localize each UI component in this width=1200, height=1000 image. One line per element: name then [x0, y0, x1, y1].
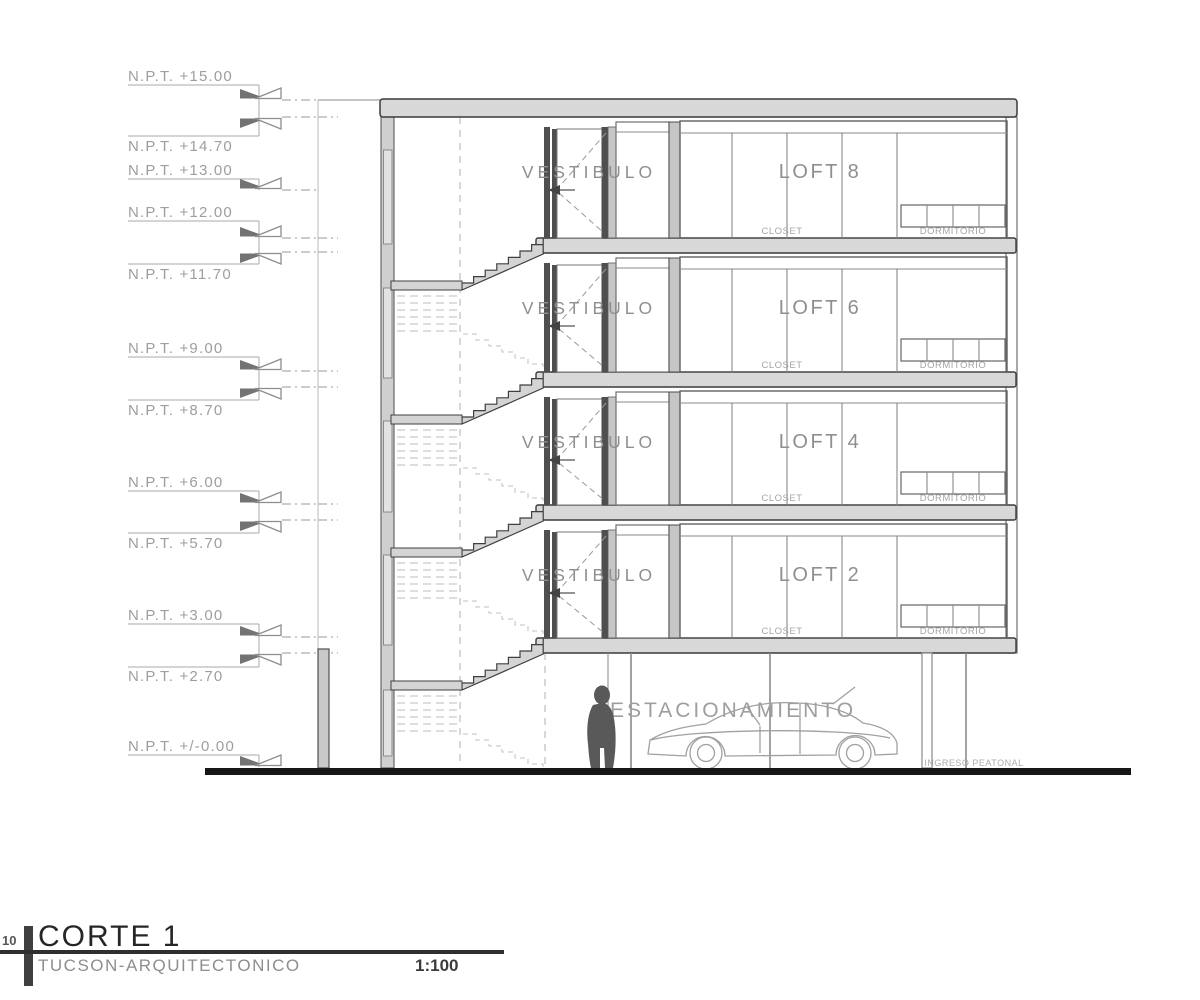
drawing-scale: 1:100 — [415, 956, 458, 976]
bedroom-label: DORMITORIO — [920, 360, 987, 371]
bedroom-label: DORMITORIO — [920, 626, 987, 637]
door-frame — [552, 265, 557, 372]
stair-hatch — [397, 696, 459, 731]
door-frame — [552, 399, 557, 505]
bedroom-label: DORMITORIO — [920, 226, 987, 237]
loft-label: LOFT 6 — [779, 297, 861, 319]
wall-window — [384, 555, 393, 645]
hidden-stair-flight — [463, 468, 543, 503]
level-label: N.P.T. +3.00 — [128, 607, 223, 624]
roof-slab — [380, 99, 1017, 117]
column — [669, 525, 680, 638]
sheet-number: 10 — [2, 933, 16, 948]
level-label: N.P.T. +6.00 — [128, 474, 223, 491]
loft-label: LOFT 2 — [779, 564, 861, 586]
stair-flight — [462, 372, 543, 424]
floor-slab — [536, 238, 1016, 253]
wall-stub — [608, 127, 616, 238]
closet-dividers — [732, 536, 897, 638]
door-frame — [552, 129, 557, 238]
vestibule-label: VESTIBULO — [522, 432, 656, 452]
level-marker — [240, 88, 281, 99]
person-silhouette — [587, 686, 615, 769]
level-label: N.P.T. +15.00 — [128, 68, 233, 85]
stair-hatch — [397, 563, 459, 598]
floor-slab — [536, 372, 1016, 387]
stair-landing — [391, 415, 462, 424]
vestibule-door — [557, 265, 602, 372]
title-divider-bar — [24, 926, 33, 986]
drawing-title: CORTE 1 — [38, 920, 181, 954]
level-label: N.P.T. +5.70 — [128, 535, 223, 552]
vestibule-label: VESTIBULO — [522, 162, 656, 182]
level-marker — [240, 119, 281, 130]
section-drawing: N.P.T. +15.00 N.P.T. +14.70 N.P.T. +13.0… — [0, 0, 1200, 1000]
level-marker — [240, 226, 281, 237]
level-marker — [240, 359, 281, 370]
stair-landing — [391, 681, 462, 690]
level-label: N.P.T. +12.00 — [128, 204, 233, 221]
stair-hatch — [397, 430, 459, 465]
level-label: N.P.T. +9.00 — [128, 340, 223, 357]
level-label: N.P.T. +13.00 — [128, 162, 233, 179]
floor-unit-2: VESTIBULO LOFT 6 CLOSET DORMITORIO — [522, 257, 1007, 372]
column — [922, 653, 932, 768]
vestibule-label: VESTIBULO — [522, 298, 656, 318]
door-frame — [544, 127, 550, 238]
title-rule — [0, 950, 504, 954]
level-marker — [240, 389, 281, 400]
level-label: N.P.T. +14.70 — [128, 138, 233, 155]
floor-unit-1: VESTIBULO LOFT 8 CLOSET DORMITORIO — [522, 121, 1007, 238]
floor-slab — [536, 505, 1016, 520]
drawing-subtitle: TUCSON-ARQUITECTONICO — [38, 956, 301, 976]
loft-label: LOFT 8 — [779, 161, 861, 183]
closet-dividers — [732, 133, 897, 238]
stair-flight — [462, 638, 543, 690]
closet-label: CLOSET — [761, 226, 802, 237]
level-marker — [240, 655, 281, 666]
column — [669, 122, 680, 238]
closet-dividers — [732, 403, 897, 505]
hidden-stair-flight — [463, 734, 543, 769]
hidden-stair-flight — [463, 601, 543, 636]
level-marker — [240, 254, 281, 265]
floor-slab — [536, 638, 1016, 653]
ground-floor: ESTACIONAMIENTO INGRESO PEATONAL — [587, 653, 1023, 769]
closet-dividers — [732, 269, 897, 372]
closet-label: CLOSET — [761, 360, 802, 371]
vestibule-door — [557, 129, 602, 238]
level-label: N.P.T. +11.70 — [128, 266, 232, 283]
door-frame — [602, 127, 609, 238]
wall-window — [384, 421, 393, 512]
blueprint-canvas: N.P.T. +15.00 N.P.T. +14.70 N.P.T. +13.0… — [0, 0, 1200, 1000]
hidden-stair-flight — [463, 334, 543, 369]
stair-hatch — [397, 296, 459, 331]
level-marker — [240, 178, 281, 189]
level-marker — [240, 492, 281, 503]
elevation-annotations: N.P.T. +15.00 N.P.T. +14.70 N.P.T. +13.0… — [128, 68, 381, 767]
stair-landing — [391, 548, 462, 557]
closet-label: CLOSET — [761, 493, 802, 504]
vestibule-label: VESTIBULO — [522, 565, 656, 585]
floor-unit-4: VESTIBULO LOFT 2 CLOSET DORMITORIO — [522, 524, 1007, 638]
wall-window — [384, 150, 393, 244]
loft-label: LOFT 4 — [779, 431, 861, 453]
closet-label: CLOSET — [761, 626, 802, 637]
wall-window — [384, 690, 393, 756]
level-marker — [240, 522, 281, 533]
pedestrian-entry-label: INGRESO PEATONAL — [924, 758, 1023, 768]
level-label: N.P.T. +8.70 — [128, 402, 223, 419]
parking-label: ESTACIONAMIENTO — [610, 699, 856, 722]
boundary-wall — [318, 649, 329, 768]
level-marker — [240, 755, 281, 766]
level-marker — [240, 625, 281, 636]
floor-unit-3: VESTIBULO LOFT 4 CLOSET DORMITORIO — [522, 391, 1007, 505]
ground-line — [205, 768, 1131, 775]
level-label: N.P.T. +2.70 — [128, 668, 223, 685]
stair-flight — [462, 238, 543, 290]
stair-flight — [462, 505, 543, 557]
stair-landing — [391, 281, 462, 290]
level-label: N.P.T. +/-0.00 — [128, 738, 235, 755]
wall-window — [384, 288, 393, 378]
staircase — [391, 238, 543, 769]
bedroom-label: DORMITORIO — [920, 493, 987, 504]
column — [669, 392, 680, 505]
column — [669, 258, 680, 372]
door-frame — [552, 532, 557, 638]
